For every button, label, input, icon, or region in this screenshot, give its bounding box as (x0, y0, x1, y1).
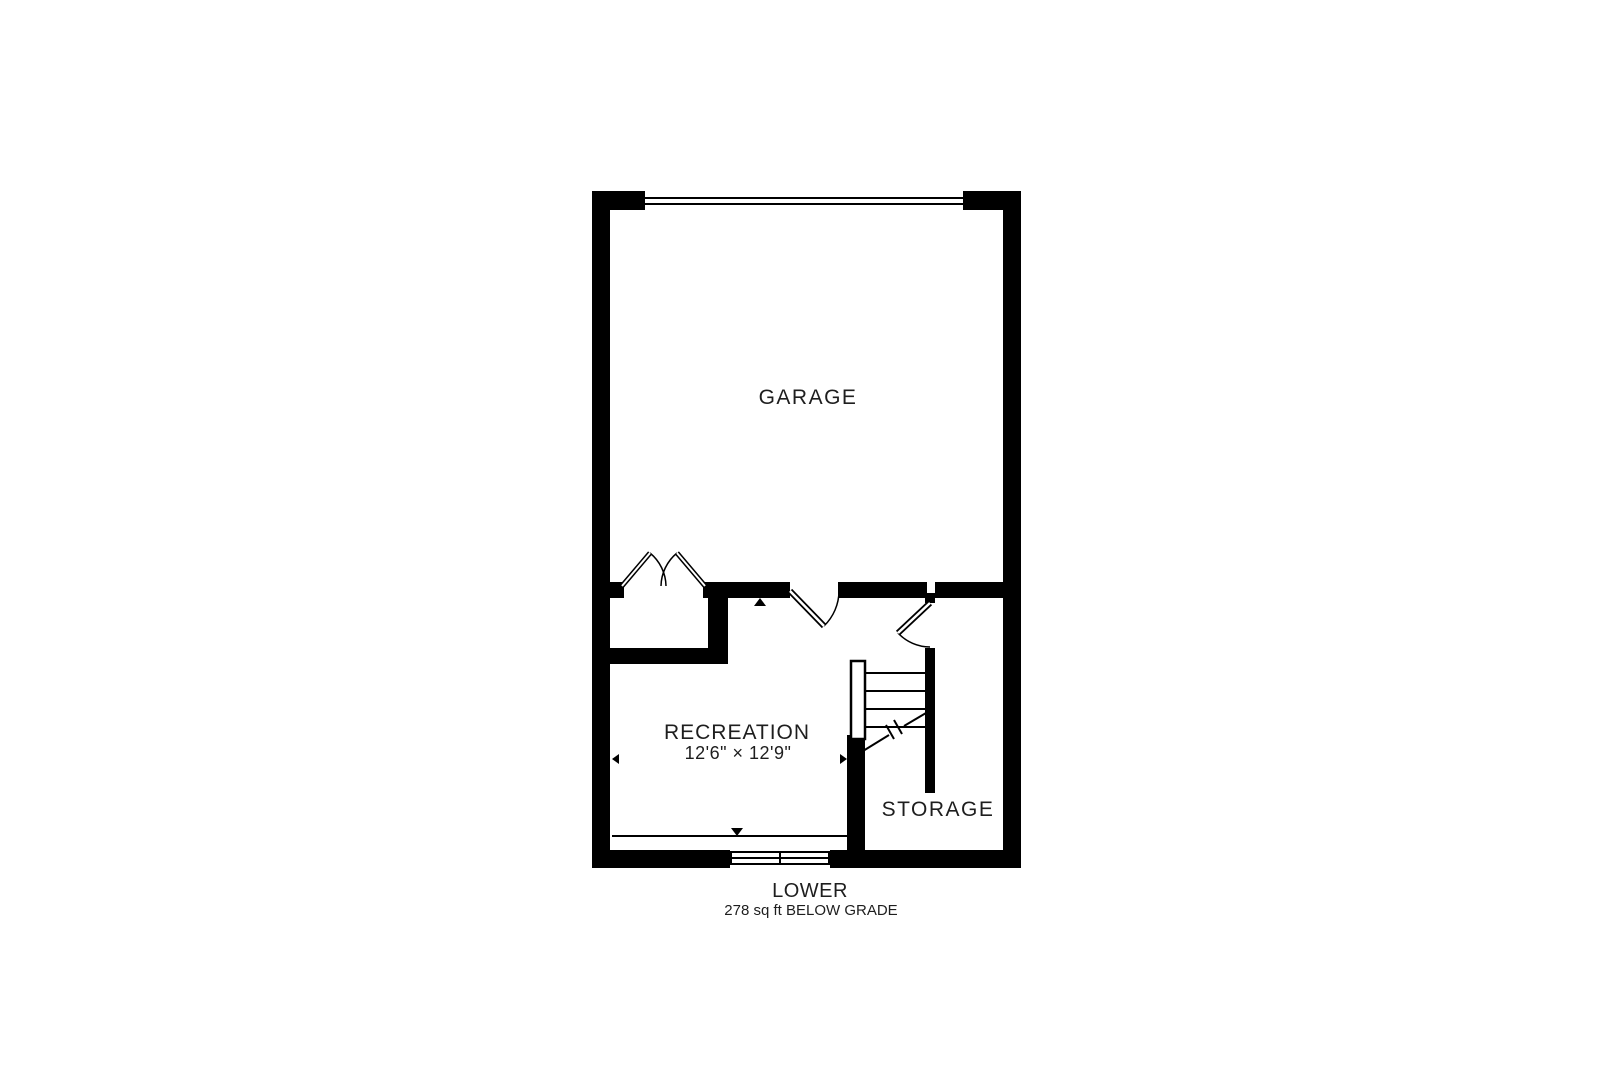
stair-direction-line (904, 713, 926, 726)
plan-lines (612, 198, 963, 865)
dimension-arrow-up (754, 598, 766, 606)
dimension-arrow-left (612, 754, 619, 764)
dimension-arrow-down (731, 828, 743, 836)
floor-plan-canvas: GARAGE RECREATION 12'6" × 12'9" STORAGE … (0, 0, 1620, 1080)
door-swing-arc-garage-entry (824, 591, 839, 626)
dimension-arrow-right (840, 754, 847, 764)
bifold-leaf-left (622, 553, 650, 586)
floor-plan-page: GARAGE RECREATION 12'6" × 12'9" STORAGE … (0, 0, 1620, 1080)
recreation-label: RECREATION (664, 721, 810, 744)
stair-rail (851, 661, 865, 739)
wall-stair-bottom-stub (847, 735, 865, 868)
wall-bottom-left-segment (592, 850, 730, 868)
wall-closet-bottom (592, 648, 728, 664)
storage-door-hinge-stub (925, 593, 935, 603)
wall-outer-right (1003, 191, 1021, 868)
wall-middle-segment-a (592, 582, 624, 598)
floor-title: LOWER (772, 880, 848, 902)
door-leaf-storage (898, 603, 930, 633)
wall-stair-right (925, 648, 935, 793)
wall-outer-left (592, 191, 610, 868)
walls (592, 191, 1021, 868)
wall-middle-segment-c (838, 582, 927, 598)
wall-middle-segment-d (935, 582, 1003, 598)
door-leaf-garage-entry (790, 591, 824, 626)
recreation-dimensions: 12'6" × 12'9" (685, 743, 792, 763)
garage-label: GARAGE (759, 386, 858, 409)
floor-area-note: 278 sq ft BELOW GRADE (724, 902, 897, 919)
wall-corner-top-left (592, 191, 645, 210)
bifold-leaf-right (677, 553, 705, 586)
door-swing-arc-storage (898, 633, 930, 647)
storage-label: STORAGE (882, 798, 995, 821)
stair-direction-line (863, 735, 889, 751)
